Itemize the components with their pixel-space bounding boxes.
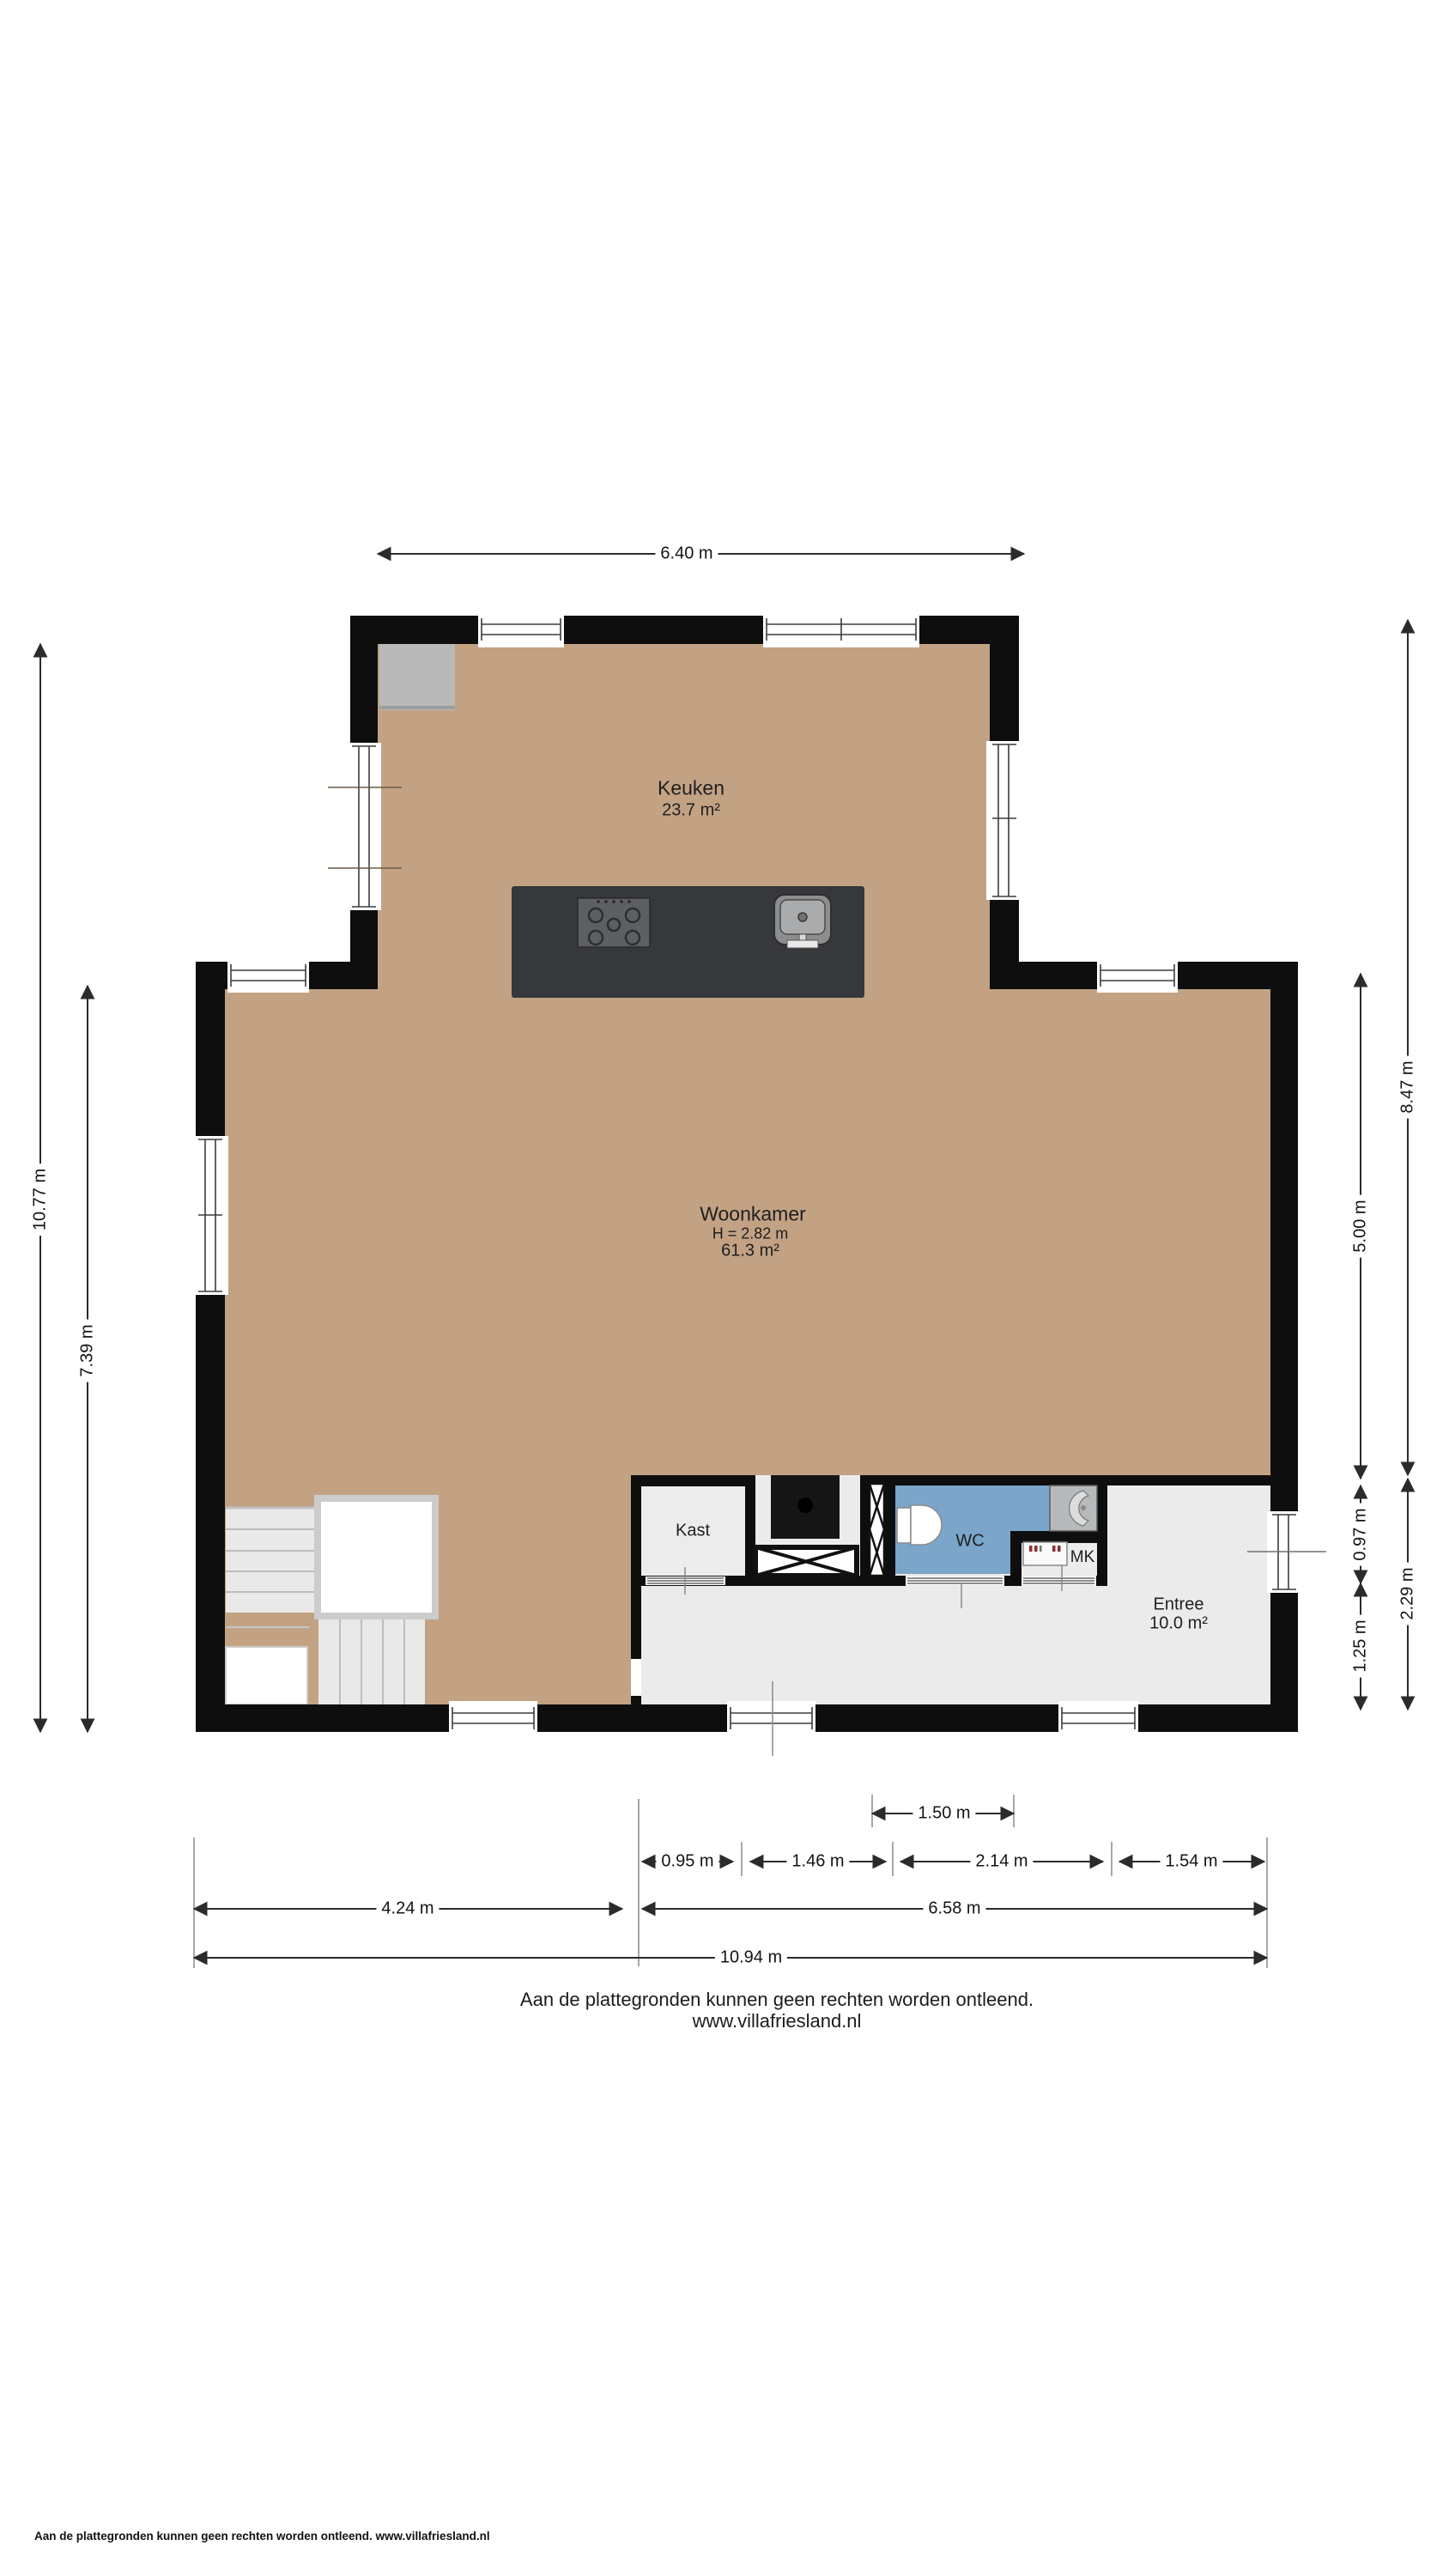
dim-label-row2-1: 1.46 m — [786, 1852, 849, 1872]
stairs-symbol — [226, 1498, 435, 1704]
room-label-keuken: Keuken — [658, 777, 724, 800]
dim-label-row2-0: 0.95 m — [656, 1852, 718, 1872]
dim-label-right-mid: 5.00 m — [1351, 1194, 1371, 1257]
dim-label-left-total: 10.77 m — [31, 1163, 51, 1236]
dim-label-right-top: 8.47 m — [1398, 1055, 1418, 1118]
room-height-woonkamer: H = 2.82 m — [712, 1225, 789, 1243]
room-label-woonkamer: Woonkamer — [700, 1203, 806, 1226]
disclaimer-line1: Aan de plattegronden kunnen geen rechten… — [520, 1989, 1034, 2011]
dim-label-row4: 10.94 m — [715, 1948, 787, 1968]
room-area-entree: 10.0 m² — [1149, 1614, 1208, 1634]
cooktop-symbol — [578, 898, 650, 947]
disclaimer-line2: www.villafriesland.nl — [693, 2010, 862, 2032]
room-area-keuken: 23.7 m² — [662, 801, 720, 821]
page-footer: Aan de plattegronden kunnen geen rechten… — [34, 2530, 490, 2543]
dim-label-row3-0: 4.24 m — [376, 1899, 439, 1919]
room-area-woonkamer: 61.3 m² — [721, 1242, 779, 1261]
sink-symbol — [774, 895, 831, 948]
dim-label-b1: 1.50 m — [912, 1804, 975, 1824]
dim-label-row2-3: 1.54 m — [1160, 1852, 1222, 1872]
floor-plan-drawing — [0, 0, 1449, 2576]
room-label-kast: Kast — [676, 1522, 710, 1541]
toilet-symbol — [897, 1505, 942, 1545]
flue-point — [797, 1498, 813, 1513]
meter-cabinet-symbol — [1023, 1542, 1067, 1565]
dim-label-top: 6.40 m — [655, 544, 718, 564]
chimney-block — [379, 644, 455, 710]
washbasin-symbol — [1050, 1485, 1097, 1531]
dim-label-row2-2: 2.14 m — [970, 1852, 1033, 1872]
dim-label-right-b: 1.25 m — [1351, 1614, 1371, 1677]
room-label-wc: WC — [955, 1532, 984, 1552]
kitchen-island — [512, 886, 864, 998]
room-label-mk: MK — [1070, 1548, 1095, 1567]
dim-label-right-bottom: 2.29 m — [1398, 1562, 1418, 1625]
dim-label-left-inner: 7.39 m — [78, 1319, 98, 1382]
room-label-entree: Entree — [1154, 1595, 1204, 1615]
dim-label-row3-1: 6.58 m — [923, 1899, 985, 1919]
floor-plan-page: Keuken 23.7 m² Woonkamer H = 2.82 m 61.3… — [0, 0, 1449, 2576]
dim-label-right-a: 0.97 m — [1351, 1503, 1371, 1565]
